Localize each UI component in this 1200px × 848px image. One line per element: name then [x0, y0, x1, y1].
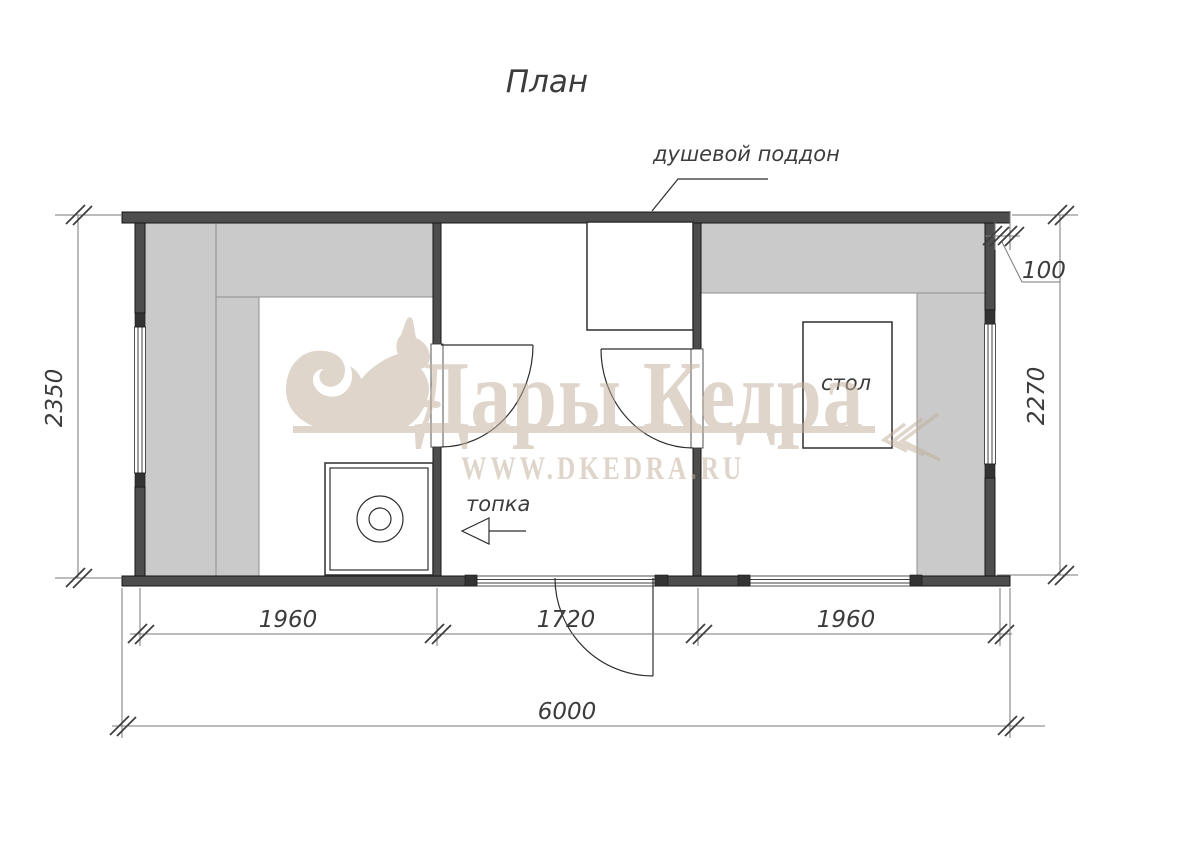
entrance-cap-left	[465, 575, 477, 586]
stove-outer	[325, 463, 433, 575]
dim-left-room-value: 1960	[259, 607, 318, 633]
wall-left-upper	[135, 223, 145, 313]
partition2-upper	[693, 223, 701, 349]
watermark-brand-text: Дары Кедра	[414, 342, 864, 449]
dim-total-value: 6000	[538, 699, 597, 725]
bench-rest-right	[917, 293, 985, 576]
wall-top	[122, 212, 1010, 223]
window-left-cap-bottom	[135, 473, 145, 487]
floor-plan-page: стол топка Дары Кедра WWW.DKEDRA.RU План…	[0, 0, 1200, 848]
shower-label: душевой поддон	[652, 142, 840, 166]
wall-left-lower	[135, 487, 145, 576]
wall-bottom-left	[122, 576, 477, 586]
watermark-site-text: WWW.DKEDRA.RU	[461, 451, 745, 487]
window-left-cap-top	[135, 313, 145, 327]
partition1-upper	[433, 223, 441, 344]
window-bottom-cap-right	[910, 575, 922, 586]
window-left-frame	[135, 327, 146, 473]
window-right-cap-top	[985, 310, 995, 324]
bench-left-wall	[145, 223, 216, 576]
floor-plan-canvas: стол топка Дары Кедра WWW.DKEDRA.RU План…	[0, 0, 1200, 848]
furnace-arrow-icon	[462, 518, 526, 544]
partition1-lower	[433, 447, 441, 576]
dim-right-room-value: 1960	[817, 607, 876, 633]
dim-100-value: 100	[1022, 258, 1066, 284]
furnace-label: топка	[466, 492, 530, 516]
dim-middle-room-value: 1720	[537, 607, 596, 633]
furnace-group: топка	[462, 492, 530, 544]
window-bottom-cap-left	[738, 575, 750, 586]
stove-group	[325, 463, 433, 575]
wall-right-lower	[985, 478, 995, 576]
dim-left-value: 2350	[42, 369, 68, 428]
shower-tray	[587, 222, 693, 330]
page-title: План	[506, 64, 588, 100]
window-bottom-frame	[750, 576, 910, 586]
window-right-cap-bottom	[985, 464, 995, 478]
bench-sauna-top	[216, 223, 433, 297]
watermark-group: Дары Кедра WWW.DKEDRA.RU	[286, 317, 940, 487]
window-right-frame	[985, 324, 996, 464]
entrance-cap-right	[655, 575, 668, 586]
shower-leader-line	[652, 179, 768, 211]
wall-bottom-middle	[655, 576, 750, 586]
dim-right-value: 2270	[1024, 367, 1050, 426]
wall-bottom-right	[910, 576, 1010, 586]
bench-sauna-step	[216, 297, 259, 576]
shower-label-group: душевой поддон	[652, 142, 840, 211]
entrance-opening	[477, 576, 655, 586]
bench-rest-top	[701, 223, 985, 293]
